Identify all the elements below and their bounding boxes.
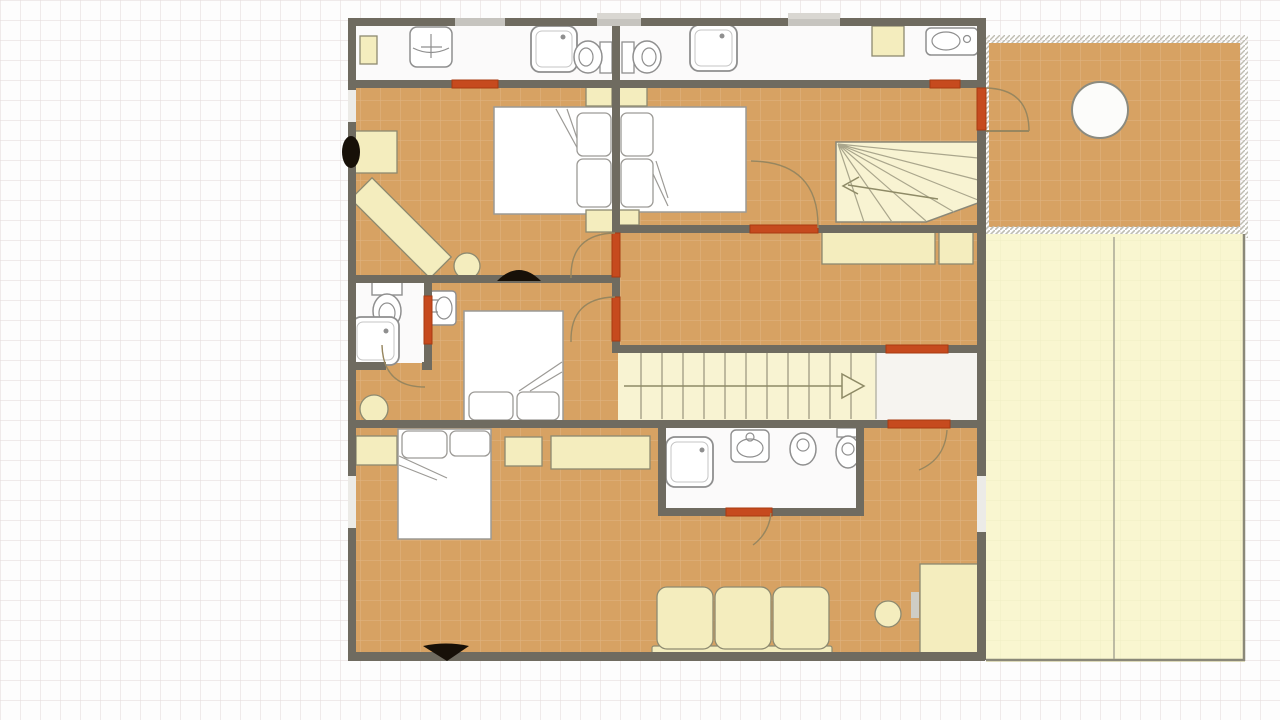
floor-plan-canvas — [0, 0, 1280, 720]
wall-smallbath-bottom-a — [348, 362, 386, 370]
window-left-2 — [348, 476, 356, 528]
wall-outer-top — [348, 18, 985, 26]
window-top-3-sill — [788, 13, 840, 19]
bed-2-pillow-b — [621, 159, 653, 207]
shower-4 — [666, 437, 713, 487]
stool-2 — [360, 395, 388, 423]
floor-plan-drawing — [0, 0, 1280, 720]
wall-stairs-bottom-b — [950, 420, 985, 428]
wall-strip-b — [498, 80, 620, 88]
wall-bbath-left — [658, 428, 666, 516]
wall-stairs-top-b — [948, 345, 985, 353]
bed-4-pillow-a — [402, 431, 447, 458]
door-landing-bottom — [888, 420, 950, 428]
toilet-right-tank — [622, 42, 634, 73]
wall-bbath-right — [856, 428, 864, 516]
bidet-bowl — [790, 433, 816, 465]
door-bedroom3 — [612, 297, 620, 341]
wall-bbath-bottom-b — [772, 508, 864, 516]
hall-sideboard — [822, 231, 935, 264]
sofa-cushion-b — [715, 587, 771, 649]
dresser — [551, 436, 650, 469]
shower-3-drain — [384, 329, 389, 334]
window-top-1 — [455, 18, 505, 26]
bed-3-pillow-a — [469, 392, 513, 420]
wall-strip-c — [620, 80, 930, 88]
stairs-landing — [876, 352, 978, 420]
door-bedroom1 — [612, 233, 620, 277]
toilet-left-bowl — [574, 41, 602, 73]
door-bath1 — [452, 80, 498, 88]
wall-bbath-bottom-a — [658, 508, 726, 516]
wall-shelf — [360, 36, 377, 64]
wall-stairs-bottom-a — [348, 420, 888, 428]
door-terrace — [977, 88, 986, 130]
wall-smallbath-right-a — [424, 283, 432, 296]
window-left-1 — [348, 90, 356, 122]
nightstand-2b — [617, 210, 639, 225]
window-top-3 — [788, 19, 840, 26]
door-bedroom2 — [750, 225, 818, 233]
desk-2-chairback — [911, 592, 919, 618]
stool-3 — [875, 601, 901, 627]
wall-bed1-bottom — [348, 275, 620, 283]
wall-bath-stub — [612, 25, 620, 81]
wall-hall-top-a — [612, 225, 750, 233]
bed-3-pillow-b — [517, 392, 559, 420]
window-top-2-sill — [597, 13, 641, 19]
winder-stairs — [836, 142, 978, 222]
bed-2-pillow-a — [621, 113, 653, 156]
wall-strip-a — [348, 80, 452, 88]
nightstand-4a — [356, 436, 397, 465]
bed-4-pillow-b — [450, 431, 490, 456]
wall-mid-vert-a — [612, 88, 620, 233]
wall-hall-top-b — [818, 225, 985, 233]
door-bottombath — [726, 508, 772, 516]
shower-1-drain — [561, 35, 566, 40]
wall-stairs-top-a — [612, 345, 886, 353]
door-landing-top — [886, 345, 948, 353]
shower-4-drain — [700, 448, 705, 453]
nightstand-4b — [505, 437, 542, 466]
desk-2 — [920, 564, 978, 658]
toilet-right-bowl — [633, 41, 661, 73]
window-top-2 — [597, 19, 641, 26]
door-bath2 — [930, 80, 960, 88]
nightstand-2a — [618, 86, 647, 106]
window-right-1 — [977, 476, 986, 532]
nightstand-1b — [586, 210, 614, 232]
nightstand-1a — [586, 86, 612, 106]
terrace-table — [1072, 82, 1128, 138]
wall-smallbath-bottom-b — [422, 362, 432, 370]
wall-strip-d — [960, 80, 978, 88]
bathroom-cabinet — [872, 26, 904, 56]
toilet-3-tank — [372, 282, 402, 295]
sofa-cushion-a — [657, 587, 713, 649]
door-smallbath — [424, 296, 432, 344]
shower-3 — [352, 317, 399, 365]
sofa-cushion-c — [773, 587, 829, 649]
tv-screen — [342, 136, 360, 168]
shower-2-drain — [720, 34, 725, 39]
hall-cabinet — [939, 231, 973, 264]
outdoor-area-grid — [986, 234, 1245, 662]
bed-1-pillow-a — [577, 113, 611, 156]
bed-1-pillow-b — [577, 159, 611, 207]
